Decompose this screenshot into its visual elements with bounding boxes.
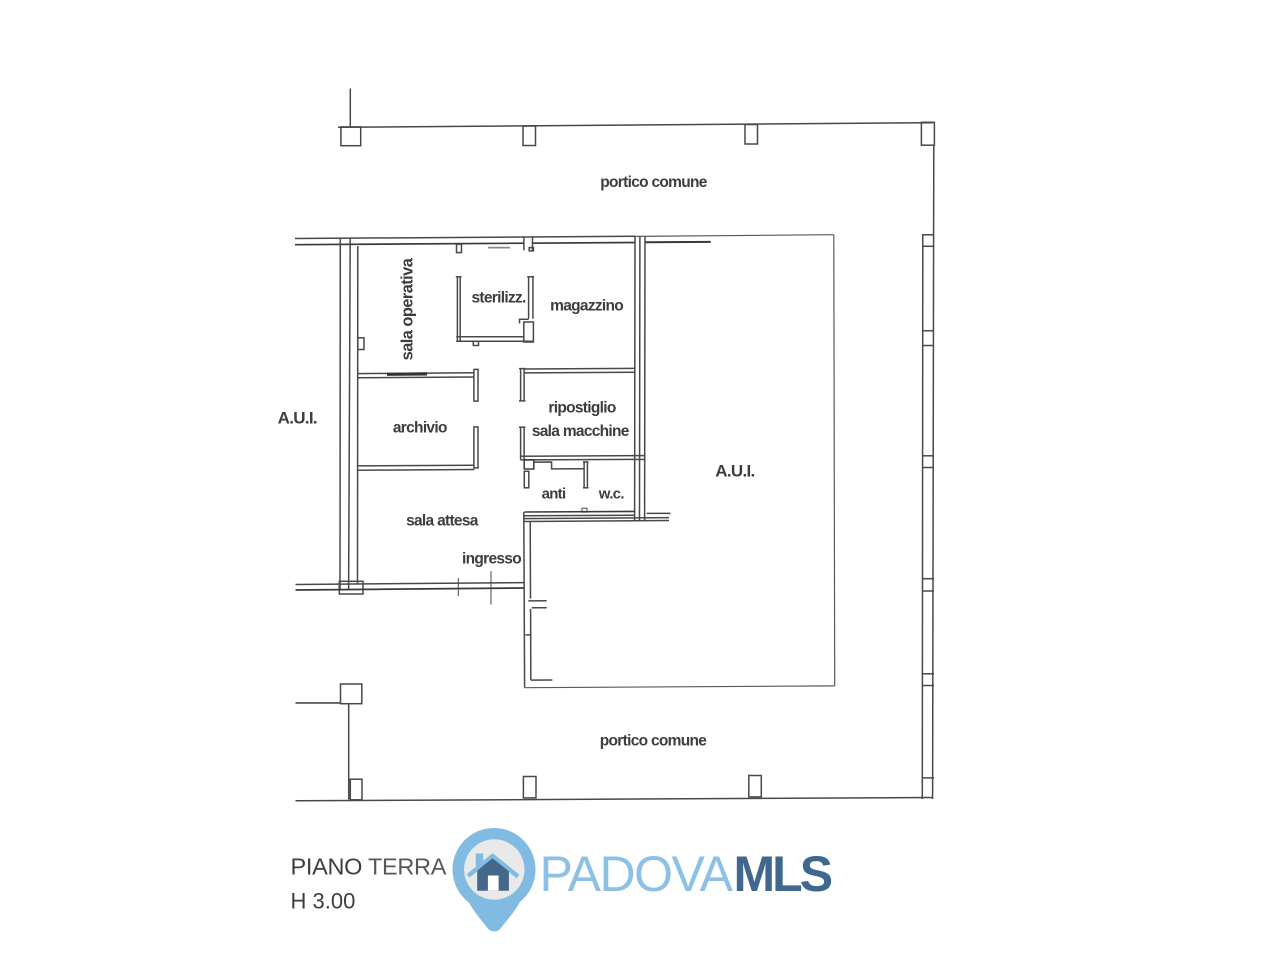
svg-text:PADOVA: PADOVA [540, 846, 734, 902]
svg-text:MLS: MLS [734, 846, 832, 902]
